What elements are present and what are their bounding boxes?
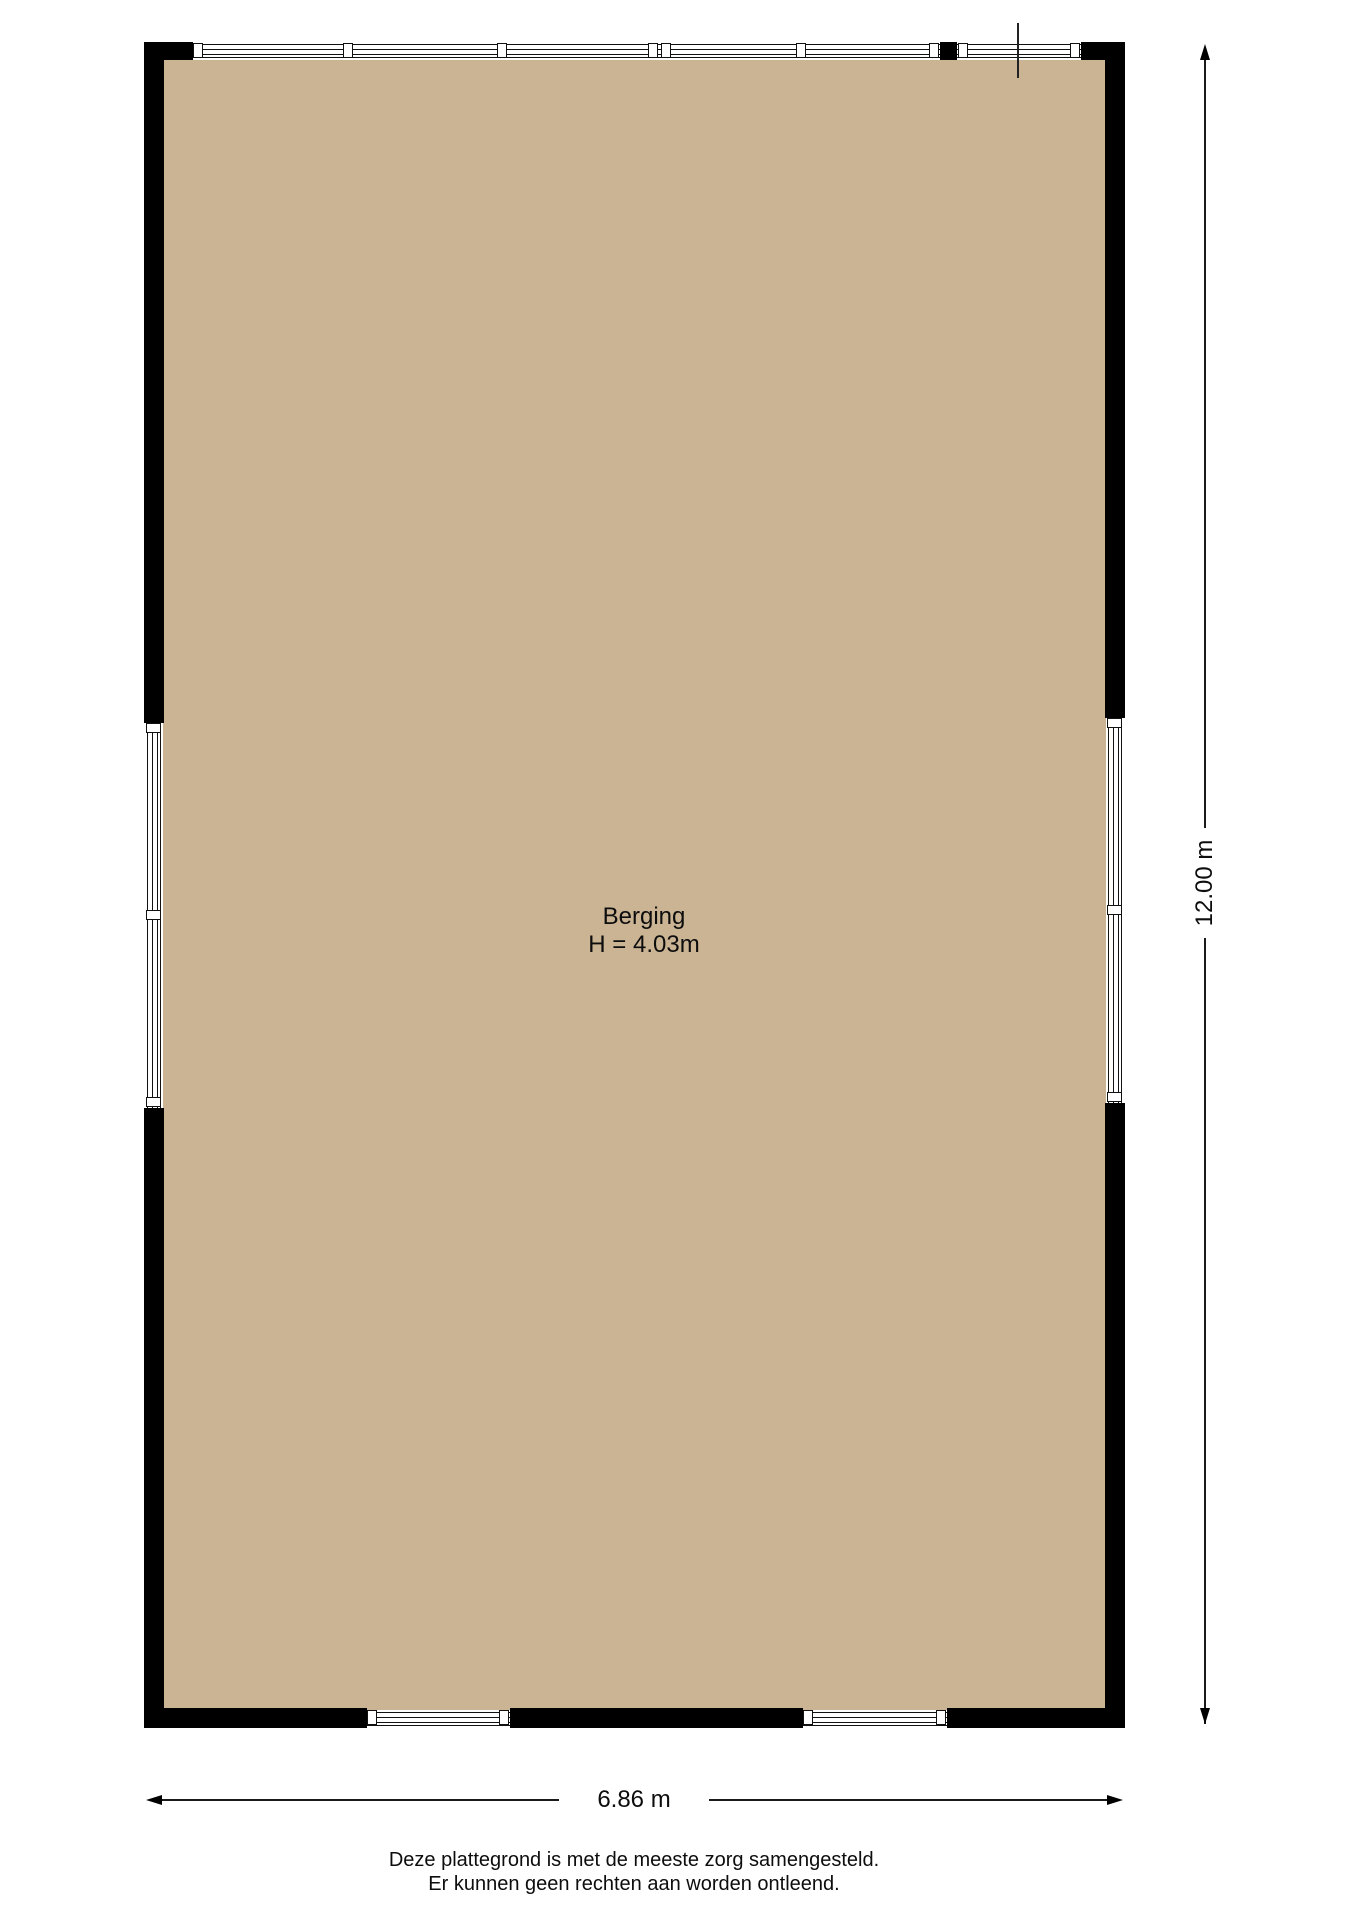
room-ceiling-height: H = 4.03m [444, 931, 844, 959]
dimension-vertical-label: 12.00 m [1192, 828, 1218, 938]
window-mullion [958, 43, 968, 58]
window-bottom-right [803, 1710, 947, 1728]
wall-left-lower [144, 1108, 164, 1728]
window-mullion [648, 43, 658, 58]
window-bottom-left [367, 1710, 510, 1728]
window-mullion [193, 43, 203, 58]
arrow-down-icon [1200, 1708, 1210, 1724]
window-mullion [929, 43, 939, 58]
window-mullion [146, 910, 161, 920]
arrow-left-icon [146, 1795, 162, 1805]
wall-bottom-middle [510, 1708, 803, 1728]
arrow-up-icon [1200, 44, 1210, 60]
wall-bottom-left [144, 1708, 367, 1728]
window-mullion [1107, 1092, 1122, 1102]
window-mullion [796, 43, 806, 58]
window-mullion [343, 43, 353, 58]
window-mullion [367, 1710, 377, 1725]
wall-right-upper [1105, 42, 1125, 718]
disclaimer-line-1: Deze plattegrond is met de meeste zorg s… [134, 1848, 1134, 1872]
window-mullion [497, 43, 507, 58]
window-mullion [499, 1710, 509, 1725]
arrow-right-icon [1107, 1795, 1123, 1805]
disclaimer: Deze plattegrond is met de meeste zorg s… [134, 1848, 1134, 1896]
window-mullion [803, 1710, 813, 1725]
room-label: Berging H = 4.03m [444, 903, 844, 959]
window-mullion [936, 1710, 946, 1725]
window-mullion [146, 723, 161, 733]
window-mullion [146, 1097, 161, 1107]
floor-plan-canvas: Berging H = 4.03m 12.00 m 6.86 m Deze pl… [0, 0, 1358, 1920]
section-marker-line [1017, 23, 1019, 78]
window-mullion [661, 43, 671, 58]
wall-bottom-right [947, 1708, 1125, 1728]
wall-left-upper [144, 42, 164, 723]
room-name: Berging [444, 903, 844, 931]
window-mullion [1070, 43, 1080, 58]
wall-right-lower [1105, 1103, 1125, 1728]
window-mullion [1107, 718, 1122, 728]
room-floor [150, 48, 1119, 1722]
wall-top-pier [940, 42, 957, 60]
window-top-right [957, 42, 1081, 60]
window-mullion [1107, 905, 1122, 915]
dimension-horizontal-label: 6.86 m [559, 1786, 709, 1814]
disclaimer-line-2: Er kunnen geen rechten aan worden ontlee… [134, 1872, 1134, 1896]
window-top-main [193, 42, 940, 60]
